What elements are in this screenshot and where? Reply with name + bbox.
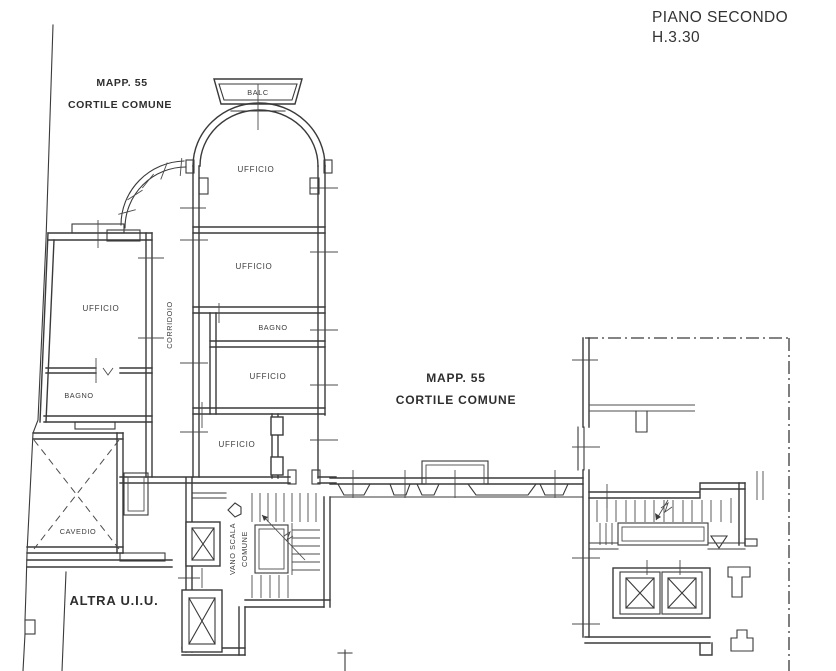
fence-arc — [118, 158, 186, 228]
height-note: H.3.30 — [652, 29, 700, 46]
bottom-wall-segment — [338, 650, 352, 671]
floor-plan-drawing: PIANO SECONDO H.3.30 MAPP. 55 CORTILE CO… — [0, 0, 836, 671]
room-label-vano-scala: VANO SCALA — [228, 523, 237, 575]
room-label-corridoio: CORRIDOIO — [165, 301, 174, 349]
page-title: PIANO SECONDO — [652, 9, 788, 26]
room-label-ufficio-west: UFFICIO — [83, 304, 120, 313]
room-label-comune: COMUNE — [240, 531, 249, 567]
right-stairs — [589, 498, 745, 549]
label-mapp-center: MAPP. 55 — [426, 371, 486, 385]
floorplan-page: PIANO SECONDO H.3.30 MAPP. 55 CORTILE CO… — [0, 0, 836, 671]
room-label-cavedio: CAVEDIO — [60, 527, 97, 536]
arch-room — [180, 103, 338, 208]
room-label-ufficio-3: UFFICIO — [250, 372, 287, 381]
label-altra-uiu: ALTRA U.I.U. — [69, 593, 158, 608]
right-elevator-2 — [662, 572, 702, 614]
room-label-ufficio-north: UFFICIO — [238, 165, 275, 174]
parcel-boundary-left — [23, 25, 53, 671]
label-mapp-top: MAPP. 55 — [96, 77, 147, 89]
balcony — [214, 79, 302, 130]
room-label-ufficio-4: UFFICIO — [219, 440, 256, 449]
room-label-balc: BALC — [247, 88, 268, 97]
entry-window — [124, 473, 148, 515]
label-cortile-top: CORTILE COMUNE — [68, 99, 172, 111]
room-label-bagno-west: BAGNO — [64, 391, 93, 400]
corridor-link — [330, 461, 583, 498]
right-elevator-1 — [620, 572, 660, 614]
elevator-shaft-2 — [182, 590, 222, 652]
room-label-ufficio-2: UFFICIO — [236, 262, 273, 271]
label-cortile-center: CORTILE COMUNE — [396, 393, 517, 407]
altra-uiu-area — [27, 553, 200, 671]
room-label-bagno-center: BAGNO — [258, 323, 287, 332]
elevator-shaft-1 — [186, 522, 220, 566]
